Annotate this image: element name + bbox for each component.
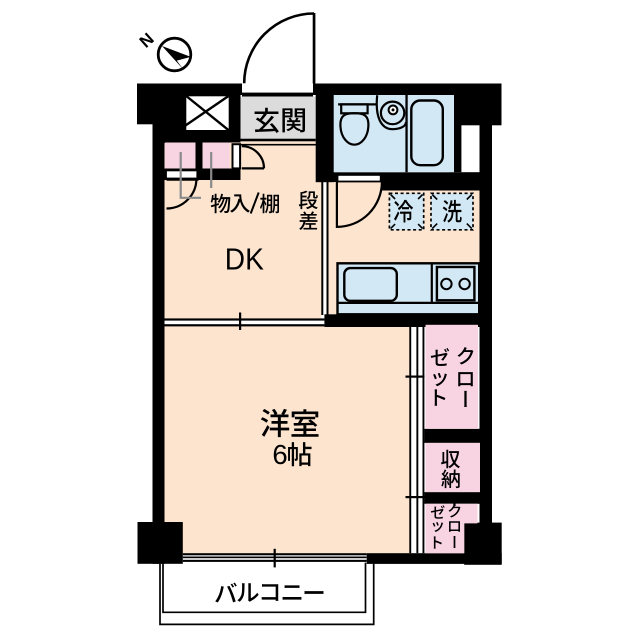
svg-text:DK: DK <box>225 241 264 276</box>
svg-text:6: 6 <box>272 439 287 470</box>
